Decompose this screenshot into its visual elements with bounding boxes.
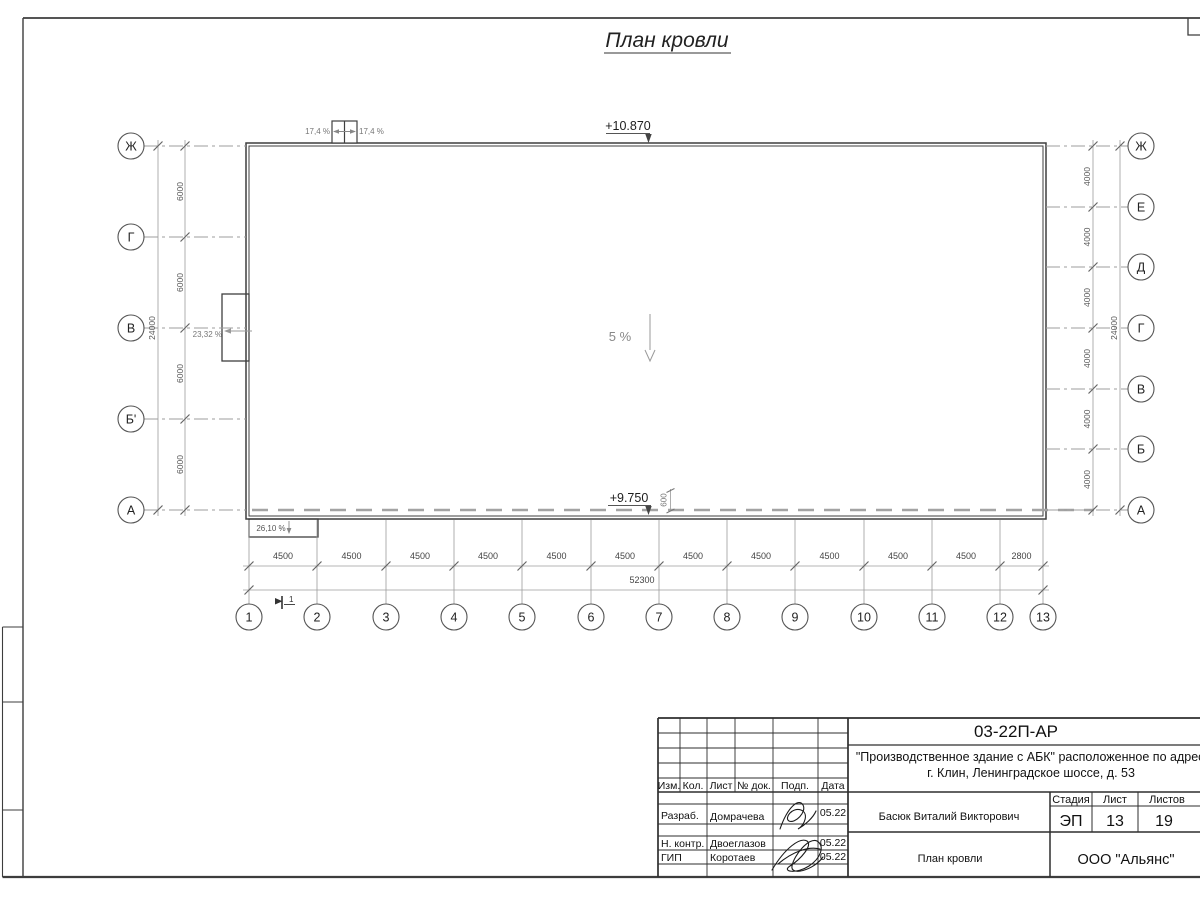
project-name-line1: "Производственное здание с АБК" располож… <box>856 750 1200 764</box>
axis-label: Д <box>1137 261 1146 275</box>
dim-label: 4500 <box>546 551 566 561</box>
section-mark: 1 <box>275 595 295 609</box>
axis-label: Ж <box>125 140 137 154</box>
sheet-value: 13 <box>1106 813 1124 830</box>
row-name: Коротаев <box>710 852 756 864</box>
dim-label: 6000 <box>175 273 185 292</box>
col-header: Подп. <box>781 780 809 792</box>
axis-label: Г <box>1138 322 1145 336</box>
dim-label: 4000 <box>1082 167 1092 186</box>
row-date: 05.22 <box>820 807 846 819</box>
axis-label: 11 <box>926 611 939 625</box>
approver-name: Басюк Виталий Викторович <box>879 811 1020 823</box>
row-date: 05.22 <box>820 837 846 849</box>
axis-label: 2 <box>314 611 321 625</box>
axis-label: 9 <box>792 611 799 625</box>
dim-label: 4500 <box>273 551 293 561</box>
axis-label: Б <box>1137 443 1145 457</box>
axis-label: В <box>1137 383 1145 397</box>
dim-label-total: 52300 <box>629 575 654 585</box>
title-block-header: Изм. Кол. Лист № док. Подп. Дата <box>658 780 845 792</box>
axis-label: 12 <box>993 611 1007 625</box>
axis-label: Б' <box>126 413 137 427</box>
roof-bumpout-west <box>222 294 249 361</box>
roof-plan-drawing: План кровли 17,4 % 17,4 % 23,32 % <box>0 0 1200 900</box>
drawing-sheet: План кровли 17,4 % 17,4 % 23,32 % <box>0 0 1200 900</box>
col-header: Кол. <box>683 780 704 792</box>
axis-label: Г <box>128 231 135 245</box>
row-name: Домрачева <box>710 811 765 823</box>
sheet-title: План кровли <box>604 29 731 53</box>
axis-label: Е <box>1137 201 1145 215</box>
dim-label: 6000 <box>175 364 185 383</box>
frame-corner-box <box>1188 18 1200 35</box>
slope-label-hatch-right: 17,4 % <box>359 127 384 136</box>
drawing-name: План кровли <box>918 853 983 865</box>
signature-scribble <box>772 840 823 871</box>
sheets-label: Листов <box>1149 794 1185 806</box>
title-block-rows: Разраб. Домрачева 05.22 Н. контр. Двоегл… <box>661 807 846 864</box>
axis-label: 10 <box>857 611 871 625</box>
col-header: Лист <box>710 780 733 792</box>
arrow-down-icon <box>287 528 292 534</box>
row-date: 05.22 <box>820 851 846 863</box>
dim-label: 2800 <box>1011 551 1031 561</box>
row-role: ГИП <box>661 852 682 864</box>
dim-label: 4500 <box>341 551 361 561</box>
dim-label: 6000 <box>175 182 185 201</box>
arrow-down-icon <box>645 134 651 143</box>
slope-label-canopy: 26,10 % <box>256 524 285 533</box>
roof-outline <box>222 121 1094 537</box>
company-name: ООО "Альянс" <box>1078 852 1175 868</box>
roof-outer-edge <box>246 143 1046 519</box>
sheets-value: 19 <box>1155 813 1173 830</box>
row-role: Разраб. <box>661 810 699 822</box>
elevation-roof-low: +9.750 <box>610 491 649 505</box>
dim-label: 6000 <box>175 455 185 474</box>
row-name: Двоеглазов <box>710 838 766 850</box>
stage-value: ЭП <box>1060 813 1083 830</box>
title-block: Изм. Кол. Лист № док. Подп. Дата Разраб.… <box>658 718 1200 877</box>
stage-label: Стадия <box>1052 794 1090 806</box>
dim-label: 4000 <box>1082 227 1092 246</box>
axis-label: 13 <box>1036 611 1050 625</box>
project-name-line2: г. Клин, Ленинградское шоссе, д. 53 <box>927 766 1135 780</box>
axis-label: 3 <box>383 611 390 625</box>
col-header: Дата <box>821 780 844 792</box>
axis-label: А <box>1137 504 1146 518</box>
slope-label-main: 5 % <box>609 329 632 344</box>
dim-label: 4000 <box>1082 349 1092 368</box>
dim-label: 4500 <box>956 551 976 561</box>
slope-label-hatch-left: 17,4 % <box>305 127 330 136</box>
dim-label: 4500 <box>751 551 771 561</box>
axis-label: Ж <box>1135 140 1147 154</box>
axis-label: В <box>127 322 135 336</box>
bottom-dim-labels: 4500 4500 4500 4500 4500 4500 4500 4500 … <box>273 551 1032 585</box>
dim-label: 4000 <box>1082 470 1092 489</box>
axis-label: 7 <box>656 611 663 625</box>
axis-label: 8 <box>724 611 731 625</box>
arrow-left-icon <box>224 328 231 333</box>
dim-label: 4500 <box>615 551 635 561</box>
axis-label: 5 <box>519 611 526 625</box>
axis-label: 6 <box>588 611 595 625</box>
dim-label: 4500 <box>888 551 908 561</box>
dim-label: 4000 <box>1082 288 1092 307</box>
col-header: Изм. <box>658 780 681 792</box>
canopy-slope-arrow <box>287 521 292 534</box>
axis-label: 1 <box>246 611 253 625</box>
row-role: Н. контр. <box>661 838 704 850</box>
dim-label: 4500 <box>410 551 430 561</box>
dim-label-total: 24000 <box>1109 316 1119 340</box>
doc-number: 03-22П-АР <box>974 722 1058 741</box>
sheet-label: Лист <box>1103 794 1127 806</box>
slope-label-west: 23,32 % <box>193 330 222 339</box>
dim-label: 4500 <box>683 551 703 561</box>
elevation-top-leader <box>606 134 650 142</box>
page-title: План кровли <box>605 29 729 52</box>
dim-label: 4000 <box>1082 409 1092 428</box>
signatures <box>772 803 823 872</box>
axis-label: А <box>127 504 136 518</box>
section-number: 1 <box>289 595 294 604</box>
dim-label-total: 24000 <box>147 316 157 340</box>
elevation-roof-top: +10.870 <box>605 119 651 133</box>
signature-scribble <box>780 803 816 829</box>
dim-label: 4500 <box>819 551 839 561</box>
col-header: № док. <box>737 780 771 792</box>
axis-label: 4 <box>451 611 458 625</box>
dim-label: 4500 <box>478 551 498 561</box>
frame-filing-boxes <box>3 627 24 877</box>
dim-label-600: 600 <box>660 493 669 507</box>
